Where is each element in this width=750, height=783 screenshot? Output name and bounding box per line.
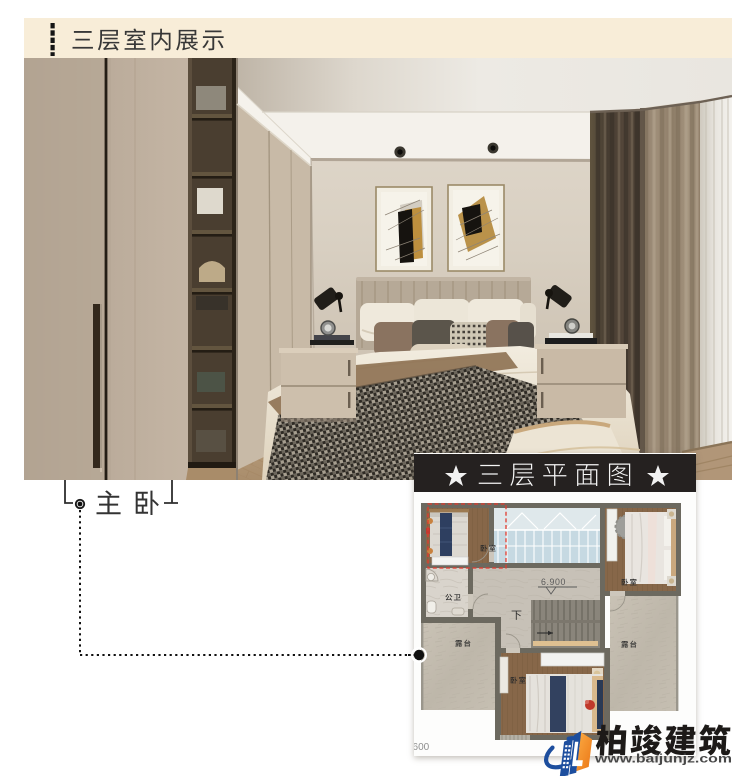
svg-text:6.900: 6.900 bbox=[541, 577, 566, 587]
svg-text:www.baijunjz.com: www.baijunjz.com bbox=[594, 752, 732, 766]
svg-text:3600: 3600 bbox=[414, 742, 430, 753]
